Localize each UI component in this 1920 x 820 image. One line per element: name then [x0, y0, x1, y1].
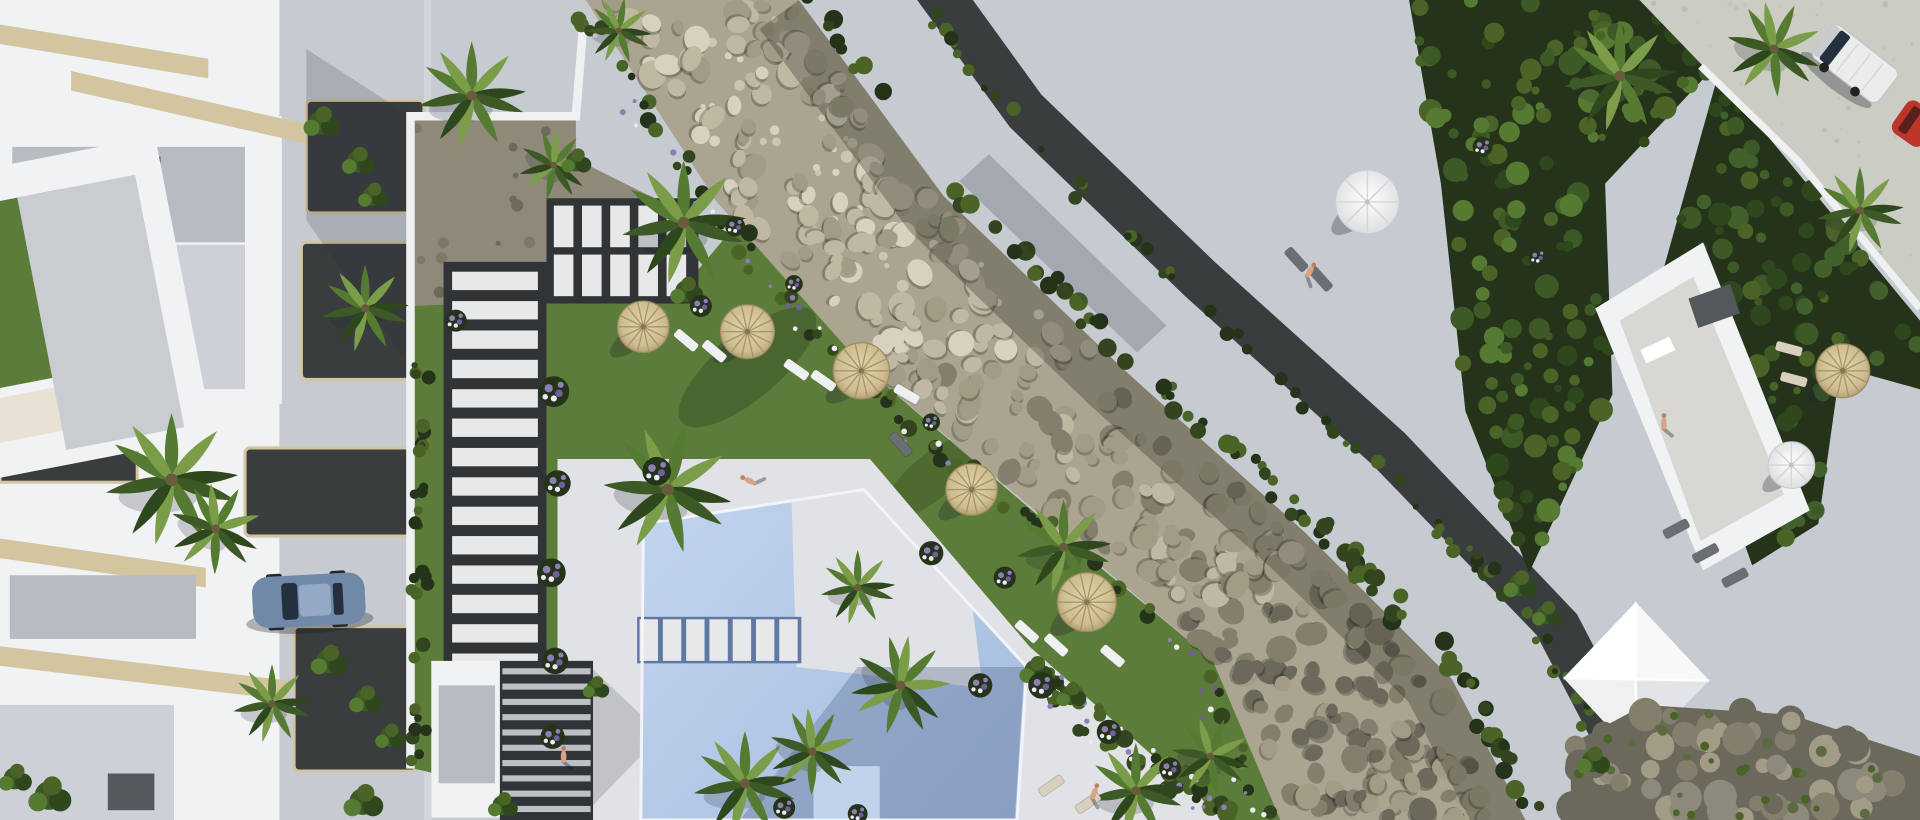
- hedge-shrub: [900, 420, 917, 437]
- flowerbed: [1473, 137, 1493, 157]
- wall-boulder: [1722, 722, 1755, 755]
- hedge-shrub: [1080, 727, 1090, 737]
- shrub: [1746, 200, 1764, 218]
- gravel: [509, 195, 517, 203]
- moss: [1787, 802, 1798, 813]
- bridge-slab: [686, 619, 704, 661]
- hedge-shrub: [673, 162, 682, 171]
- flower: [634, 123, 638, 127]
- shrub: [1536, 108, 1551, 123]
- grass-tuft: [770, 125, 780, 135]
- shrub: [1533, 343, 1548, 358]
- moss: [1673, 809, 1680, 816]
- hedge-shrub: [1371, 454, 1386, 469]
- hedge-shrub: [1516, 797, 1528, 809]
- hedge-shrub: [408, 723, 421, 736]
- shrub: [1547, 435, 1559, 447]
- hedge-shrub: [1534, 801, 1544, 811]
- shrub: [1791, 283, 1803, 295]
- hedge-shrub: [1542, 634, 1553, 645]
- hedge-shrub: [1498, 740, 1509, 751]
- hedge-shrub: [1040, 277, 1058, 295]
- person-head: [1662, 413, 1667, 418]
- hedge-shrub: [1275, 372, 1288, 385]
- gravel: [496, 241, 501, 246]
- stepping-stone: [452, 330, 538, 348]
- hedge-shrub: [944, 31, 958, 45]
- rear-glass: [332, 583, 343, 615]
- hedge-shrub: [1441, 651, 1457, 667]
- hedge-shrub: [409, 703, 420, 714]
- flower: [1244, 791, 1247, 794]
- hedge-shrub: [414, 506, 423, 515]
- hedge-shrub: [812, 329, 822, 339]
- hedge-shrub: [411, 369, 421, 379]
- shrub: [1520, 490, 1533, 503]
- moss: [1687, 811, 1695, 819]
- gravel: [438, 238, 449, 249]
- shrub: [1832, 332, 1845, 345]
- flower: [818, 326, 822, 330]
- hedge-shrub: [1532, 636, 1540, 644]
- hedge-shrub: [1343, 440, 1350, 447]
- hedge-shrub: [1298, 514, 1311, 527]
- hedge-shrub: [1251, 454, 1261, 464]
- shrub: [1501, 237, 1516, 252]
- hedge-shrub: [1290, 387, 1301, 398]
- shrub: [1756, 232, 1766, 242]
- hedge-shrub: [410, 587, 422, 599]
- flower: [1201, 714, 1205, 718]
- shrub: [1708, 202, 1732, 226]
- shrub: [1798, 223, 1814, 239]
- boulder: [832, 192, 848, 213]
- flower: [1221, 805, 1227, 811]
- hedge-shrub: [1366, 585, 1378, 597]
- shrub: [1545, 48, 1554, 57]
- shrub: [1567, 320, 1587, 340]
- hedge-shrub: [1481, 727, 1497, 743]
- stepping-stone: [452, 595, 538, 613]
- hedge-shrub: [414, 749, 424, 759]
- underwater-steps: [814, 766, 880, 820]
- shrub: [1554, 384, 1562, 392]
- moss: [1700, 742, 1709, 751]
- hedge-shrub: [1435, 632, 1454, 651]
- flower: [1059, 674, 1065, 680]
- hedge-shrub: [933, 453, 948, 468]
- hedge-shrub: [413, 445, 426, 458]
- hedge-shrub: [1233, 329, 1244, 340]
- hedge-shrub: [1124, 232, 1132, 240]
- grass-tuft: [815, 170, 821, 176]
- shrub: [1738, 223, 1754, 239]
- shrub: [1456, 169, 1468, 181]
- hedge-shrub: [1204, 670, 1218, 684]
- hedge-shrub: [988, 220, 1002, 234]
- gravel: [1742, 3, 1747, 8]
- hedge-shrub: [1190, 423, 1206, 439]
- wall-boulder: [1832, 728, 1847, 743]
- shrub: [1455, 355, 1471, 371]
- shrub: [1812, 506, 1822, 516]
- hedge-shrub: [420, 725, 431, 736]
- wall-boulder: [1646, 732, 1675, 761]
- flowerbed: [540, 725, 564, 749]
- hedge-shrub: [1466, 678, 1475, 687]
- hedge-shrub: [1089, 316, 1099, 326]
- wall-boulder: [1856, 776, 1874, 793]
- shrub: [1482, 79, 1491, 88]
- flower: [901, 429, 907, 435]
- flower: [1089, 740, 1093, 744]
- shrub: [1558, 482, 1567, 491]
- shrub: [1535, 274, 1559, 298]
- hedge-shrub: [1488, 562, 1502, 576]
- stepping-stone-bridge: [640, 619, 798, 661]
- flower: [786, 303, 791, 308]
- shrub: [1499, 122, 1520, 143]
- shrub: [1870, 282, 1888, 300]
- hedge-shrub: [1239, 743, 1248, 752]
- grass-tuft: [734, 80, 745, 91]
- hedge-shrub: [411, 362, 417, 368]
- shrub: [1473, 117, 1489, 133]
- shrub: [1677, 76, 1689, 88]
- shrub: [1556, 242, 1565, 251]
- shrub: [1793, 387, 1801, 395]
- rooftop-skylight-box: [108, 773, 155, 810]
- shrub: [1539, 156, 1553, 170]
- shrub: [1563, 304, 1579, 320]
- pergola-slat: [502, 791, 590, 797]
- stepping-stone: [610, 206, 630, 248]
- shrub: [1511, 373, 1524, 386]
- hedge-shrub: [1348, 548, 1360, 560]
- hedge-shrub: [1446, 544, 1460, 558]
- hedge-shrub: [422, 371, 436, 385]
- shrub: [1796, 298, 1813, 315]
- shrub: [1508, 414, 1524, 430]
- hedge-shrub: [747, 243, 755, 251]
- flowerbed: [1529, 248, 1547, 266]
- flowerbed: [1097, 720, 1121, 744]
- hedge-shrub: [1006, 102, 1020, 116]
- shrub: [1727, 261, 1739, 273]
- shrub: [1511, 96, 1526, 111]
- shrub: [1476, 287, 1490, 301]
- hedge-shrub: [1323, 517, 1335, 529]
- gravel: [513, 173, 519, 179]
- shrub: [1473, 302, 1490, 319]
- hedge-shrub: [1396, 610, 1406, 620]
- person-body: [1661, 417, 1667, 430]
- shrub: [1535, 532, 1550, 547]
- flower: [1212, 685, 1217, 690]
- shrub: [1593, 336, 1607, 350]
- wall-boulder: [1766, 755, 1787, 776]
- hedge-shrub: [1321, 415, 1331, 425]
- flower: [796, 304, 802, 310]
- flower: [945, 460, 951, 466]
- shrub: [1776, 412, 1795, 431]
- hedge-shrub: [997, 501, 1009, 513]
- flower: [793, 326, 798, 331]
- gravel: [1858, 141, 1861, 144]
- hedge-shrub: [648, 123, 663, 138]
- hedge-shrub: [1296, 402, 1309, 415]
- shrub: [1489, 425, 1502, 438]
- shrub: [1768, 396, 1776, 404]
- hedge-shrub: [928, 21, 936, 29]
- shrub: [1598, 134, 1605, 141]
- stepping-stone: [452, 389, 538, 407]
- wall-boulder: [1641, 779, 1661, 799]
- shrub: [1778, 295, 1793, 310]
- gravel: [524, 237, 535, 248]
- hedge-shrub: [731, 245, 746, 260]
- flowerbed: [1028, 672, 1054, 698]
- shrub: [1486, 453, 1510, 477]
- hedge-shrub: [1576, 721, 1587, 732]
- shrub: [1569, 375, 1580, 386]
- flower: [769, 285, 772, 288]
- flower: [832, 346, 838, 352]
- hedge-shrub: [990, 91, 1000, 101]
- wall-boulder: [1672, 722, 1697, 747]
- pergola-slat: [502, 760, 590, 766]
- shrub: [1485, 377, 1498, 390]
- grass-tuft: [884, 263, 889, 268]
- pergola-slat: [502, 775, 590, 781]
- shrub: [1869, 351, 1884, 366]
- hedge-shrub: [1204, 305, 1217, 318]
- shrub: [1792, 253, 1812, 273]
- stepping-stone: [452, 565, 538, 583]
- grass-tuft: [832, 169, 839, 176]
- shrub: [1596, 31, 1605, 40]
- gravel-bed-stone-border: [245, 448, 412, 536]
- flowerbed: [538, 376, 569, 407]
- flower: [1250, 807, 1255, 812]
- hedge-shrub: [409, 652, 420, 663]
- moss: [1708, 758, 1713, 763]
- shrub: [1558, 51, 1582, 75]
- stepping-stone: [610, 255, 630, 297]
- gravel: [1911, 42, 1914, 45]
- person-head: [561, 746, 566, 751]
- aerial-render-scene: [0, 0, 1920, 820]
- hedge-shrub: [409, 516, 422, 529]
- hedge-shrub: [1466, 545, 1472, 551]
- shrub: [1482, 265, 1498, 281]
- hedge-shrub: [1027, 266, 1042, 281]
- hedge-shrub: [743, 265, 753, 275]
- hedge-shrub: [1239, 754, 1247, 762]
- gravel: [1651, 1, 1656, 6]
- flowerbed: [690, 295, 712, 317]
- shrub: [1783, 177, 1793, 187]
- flowerbed: [922, 413, 940, 431]
- stepping-stone: [452, 360, 538, 378]
- shrub: [1516, 78, 1532, 94]
- stepping-stone: [452, 477, 538, 495]
- flower: [1191, 806, 1195, 810]
- hedge-shrub: [1327, 426, 1340, 439]
- gravel: [1779, 5, 1782, 8]
- shrub: [1650, 107, 1661, 118]
- stepping-stone: [582, 206, 602, 248]
- wall-boulder: [1782, 712, 1801, 731]
- shrub: [1557, 345, 1577, 365]
- hedge-shrub: [1242, 344, 1253, 355]
- hedge-shrub: [1075, 175, 1087, 187]
- moss: [1813, 805, 1819, 811]
- shrub: [1542, 406, 1559, 423]
- screenshot-root: [0, 0, 1920, 820]
- hedge-shrub: [953, 49, 962, 58]
- flowerbed: [1159, 758, 1181, 780]
- moss: [1762, 738, 1773, 749]
- gravel: [509, 143, 518, 152]
- flower: [670, 149, 676, 155]
- hedge-shrub: [1213, 708, 1230, 725]
- gravel: [1815, 14, 1818, 17]
- shrub: [1500, 342, 1512, 354]
- flower: [1151, 748, 1156, 753]
- shrub: [1421, 46, 1440, 65]
- grass-tuft: [879, 252, 888, 261]
- gravel: [1834, 138, 1839, 143]
- shrub: [1750, 305, 1771, 326]
- hedge-shrub: [1395, 474, 1407, 486]
- wall-boulder: [1697, 729, 1721, 753]
- stepping-stone: [452, 272, 538, 290]
- shrub: [1524, 362, 1532, 370]
- hedge-shrub: [416, 419, 430, 433]
- gravel: [1733, 5, 1739, 11]
- flowerbed: [773, 797, 795, 819]
- shrub: [1584, 357, 1594, 367]
- shrub: [1769, 382, 1778, 391]
- gravel: [417, 256, 425, 264]
- gravel: [1708, 44, 1711, 47]
- hedge-shrub: [1026, 512, 1036, 522]
- hedge-shrub: [1117, 353, 1134, 370]
- parked-car-blue: [244, 569, 374, 637]
- flower: [790, 295, 795, 300]
- hedge-shrub: [1183, 411, 1194, 422]
- hedge-shrub: [1168, 273, 1175, 280]
- shrub: [1771, 196, 1782, 207]
- gravel: [1739, 81, 1744, 86]
- shrub: [1453, 200, 1474, 221]
- shrub: [1814, 260, 1832, 278]
- gravel: [1697, 21, 1700, 24]
- hedge-shrub: [416, 486, 428, 498]
- stepping-stone: [452, 536, 538, 554]
- hedge-shrub: [1261, 471, 1270, 480]
- shrub: [1506, 161, 1530, 185]
- grass-tuft: [772, 137, 781, 146]
- flowerbed: [725, 217, 745, 237]
- shrub: [1697, 195, 1712, 209]
- shrub: [1716, 163, 1727, 174]
- shrub: [1450, 307, 1474, 331]
- gravel: [1882, 46, 1887, 51]
- gravel: [1882, 1, 1888, 7]
- pergola-slat: [502, 714, 590, 720]
- grass-tuft: [709, 136, 720, 147]
- flowerbed: [544, 470, 570, 496]
- shrub: [1741, 171, 1759, 189]
- shrub: [1584, 304, 1596, 316]
- shrub: [1895, 323, 1911, 339]
- wall-boulder: [1670, 782, 1702, 814]
- hedge-shrub: [628, 73, 636, 81]
- flower: [1261, 812, 1266, 817]
- hedge-shrub: [415, 565, 429, 579]
- flowerbed: [542, 648, 568, 674]
- flower: [1168, 638, 1172, 642]
- shrub: [1544, 212, 1558, 226]
- shrub: [1589, 398, 1613, 422]
- shrub: [1720, 112, 1728, 120]
- moss: [1705, 709, 1714, 718]
- shrub: [1498, 498, 1514, 514]
- shrub: [1567, 387, 1584, 404]
- hedge-shrub: [931, 7, 943, 19]
- flower: [633, 99, 637, 103]
- hedge-shrub: [1445, 537, 1453, 545]
- pergola-slat: [502, 684, 590, 690]
- hedge-shrub: [1495, 762, 1512, 779]
- shrub: [1796, 323, 1818, 345]
- flowerbed: [968, 673, 992, 697]
- hedge-shrub: [1413, 504, 1419, 510]
- car-roof: [298, 583, 331, 616]
- flowerbed: [994, 567, 1016, 589]
- hedge-shrub: [616, 60, 628, 72]
- gravel: [1846, 106, 1851, 111]
- hedge-shrub: [1265, 491, 1277, 503]
- stepping-stone: [452, 624, 538, 642]
- bridge-slab: [709, 619, 727, 661]
- wall-boulder: [1610, 774, 1628, 792]
- stepping-stone: [452, 448, 538, 466]
- gravel: [1840, 128, 1843, 131]
- bridge-slab: [663, 619, 681, 661]
- flower: [711, 209, 716, 214]
- moss: [1761, 796, 1769, 804]
- shrub: [1536, 498, 1560, 522]
- moss: [1801, 795, 1810, 804]
- flowerbed: [785, 275, 803, 293]
- shrub: [1529, 318, 1550, 339]
- gravel: [541, 126, 551, 136]
- hedge-shrub: [1393, 589, 1408, 604]
- shrub: [1531, 86, 1539, 94]
- hedge-shrub: [1164, 401, 1182, 419]
- shrub: [1552, 462, 1571, 481]
- hedge-shrub: [963, 64, 975, 76]
- hedge-shrub: [1473, 552, 1481, 560]
- roof-terrace-floor: [10, 575, 196, 639]
- hedge-shrub: [639, 100, 648, 109]
- flower: [1199, 688, 1204, 693]
- wall-boulder: [1616, 742, 1641, 767]
- flower: [620, 109, 626, 115]
